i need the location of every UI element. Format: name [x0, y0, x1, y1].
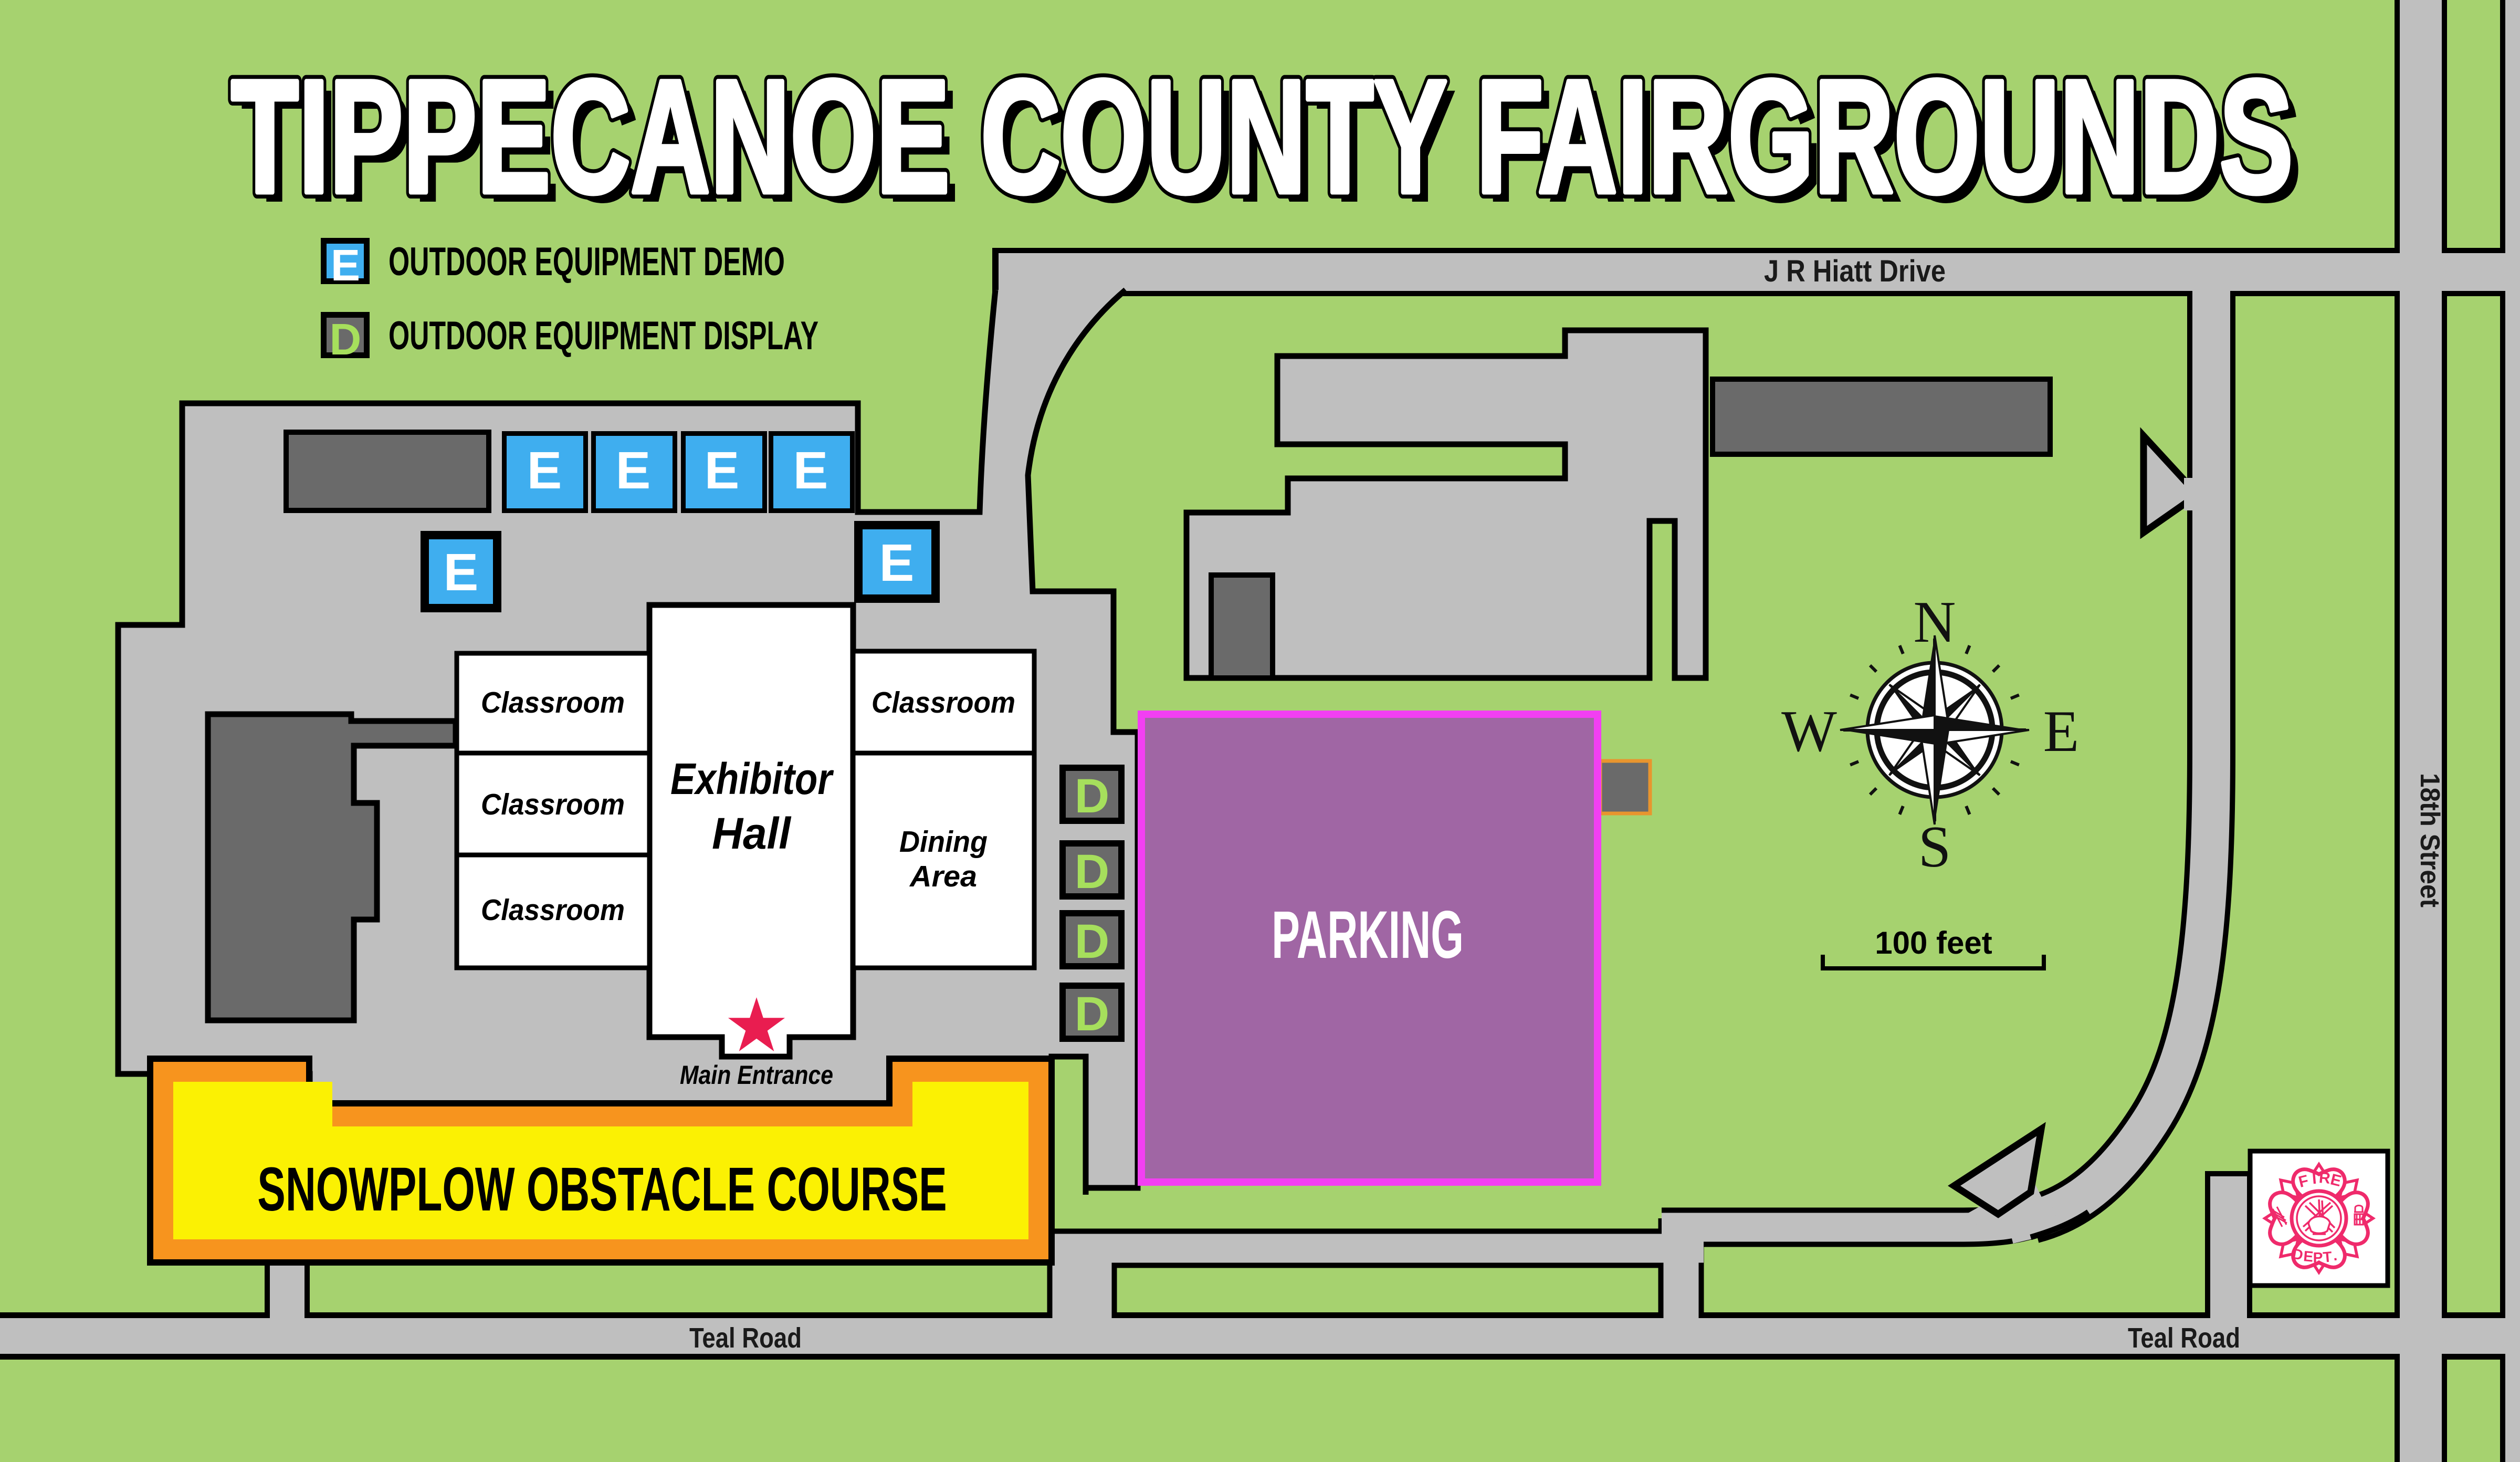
svg-text:Classroom: Classroom — [481, 788, 625, 821]
svg-text:OUTDOOR EQUIPMENT DEMO: OUTDOOR EQUIPMENT DEMO — [388, 239, 785, 284]
svg-text:E: E — [616, 441, 651, 500]
svg-text:100 feet: 100 feet — [1875, 925, 1992, 960]
svg-text:J R Hiatt Drive: J R Hiatt Drive — [1764, 254, 1946, 288]
svg-text:T: T — [2322, 1248, 2333, 1265]
svg-text:D: D — [1075, 987, 1109, 1041]
svg-text:D: D — [330, 315, 362, 364]
svg-text:W: W — [1781, 699, 1837, 764]
svg-text:E: E — [705, 441, 740, 500]
svg-text:18th Street: 18th Street — [2414, 773, 2445, 907]
svg-text:Classroom: Classroom — [871, 686, 1015, 719]
svg-text:E: E — [444, 543, 479, 602]
svg-text:Main Entrance: Main Entrance — [680, 1060, 833, 1090]
svg-text:D: D — [1075, 915, 1109, 968]
svg-text:Teal Road: Teal Road — [2128, 1322, 2240, 1354]
svg-text:N: N — [1914, 590, 1956, 655]
svg-text:SNOWPLOW OBSTACLE COURSE: SNOWPLOW OBSTACLE COURSE — [257, 1155, 947, 1224]
svg-text:Exhibitor: Exhibitor — [670, 754, 834, 803]
svg-text:PARKING: PARKING — [1272, 897, 1464, 973]
svg-text:Dining: Dining — [899, 825, 988, 859]
svg-text:E: E — [2043, 699, 2079, 764]
svg-text:Hall: Hall — [712, 809, 792, 858]
svg-text:OUTDOOR EQUIPMENT DISPLAY: OUTDOOR EQUIPMENT DISPLAY — [388, 313, 818, 358]
svg-text:E: E — [527, 441, 562, 500]
svg-text:Area: Area — [909, 860, 977, 893]
svg-text:TIPPECANOE COUNTY FAIRGROUNDS: TIPPECANOE COUNTY FAIRGROUNDS — [231, 46, 2293, 226]
svg-text:Teal Road: Teal Road — [689, 1322, 802, 1354]
svg-text:P: P — [2313, 1249, 2323, 1266]
svg-text:E: E — [2303, 1248, 2314, 1265]
svg-text:E: E — [793, 441, 828, 500]
svg-text:E: E — [331, 241, 360, 290]
svg-text:S: S — [1918, 814, 1951, 880]
svg-text:E: E — [879, 534, 915, 592]
svg-text:Classroom: Classroom — [481, 893, 625, 927]
svg-text:D: D — [1075, 845, 1109, 899]
svg-text:Classroom: Classroom — [481, 686, 625, 719]
svg-text:D: D — [1075, 769, 1109, 823]
